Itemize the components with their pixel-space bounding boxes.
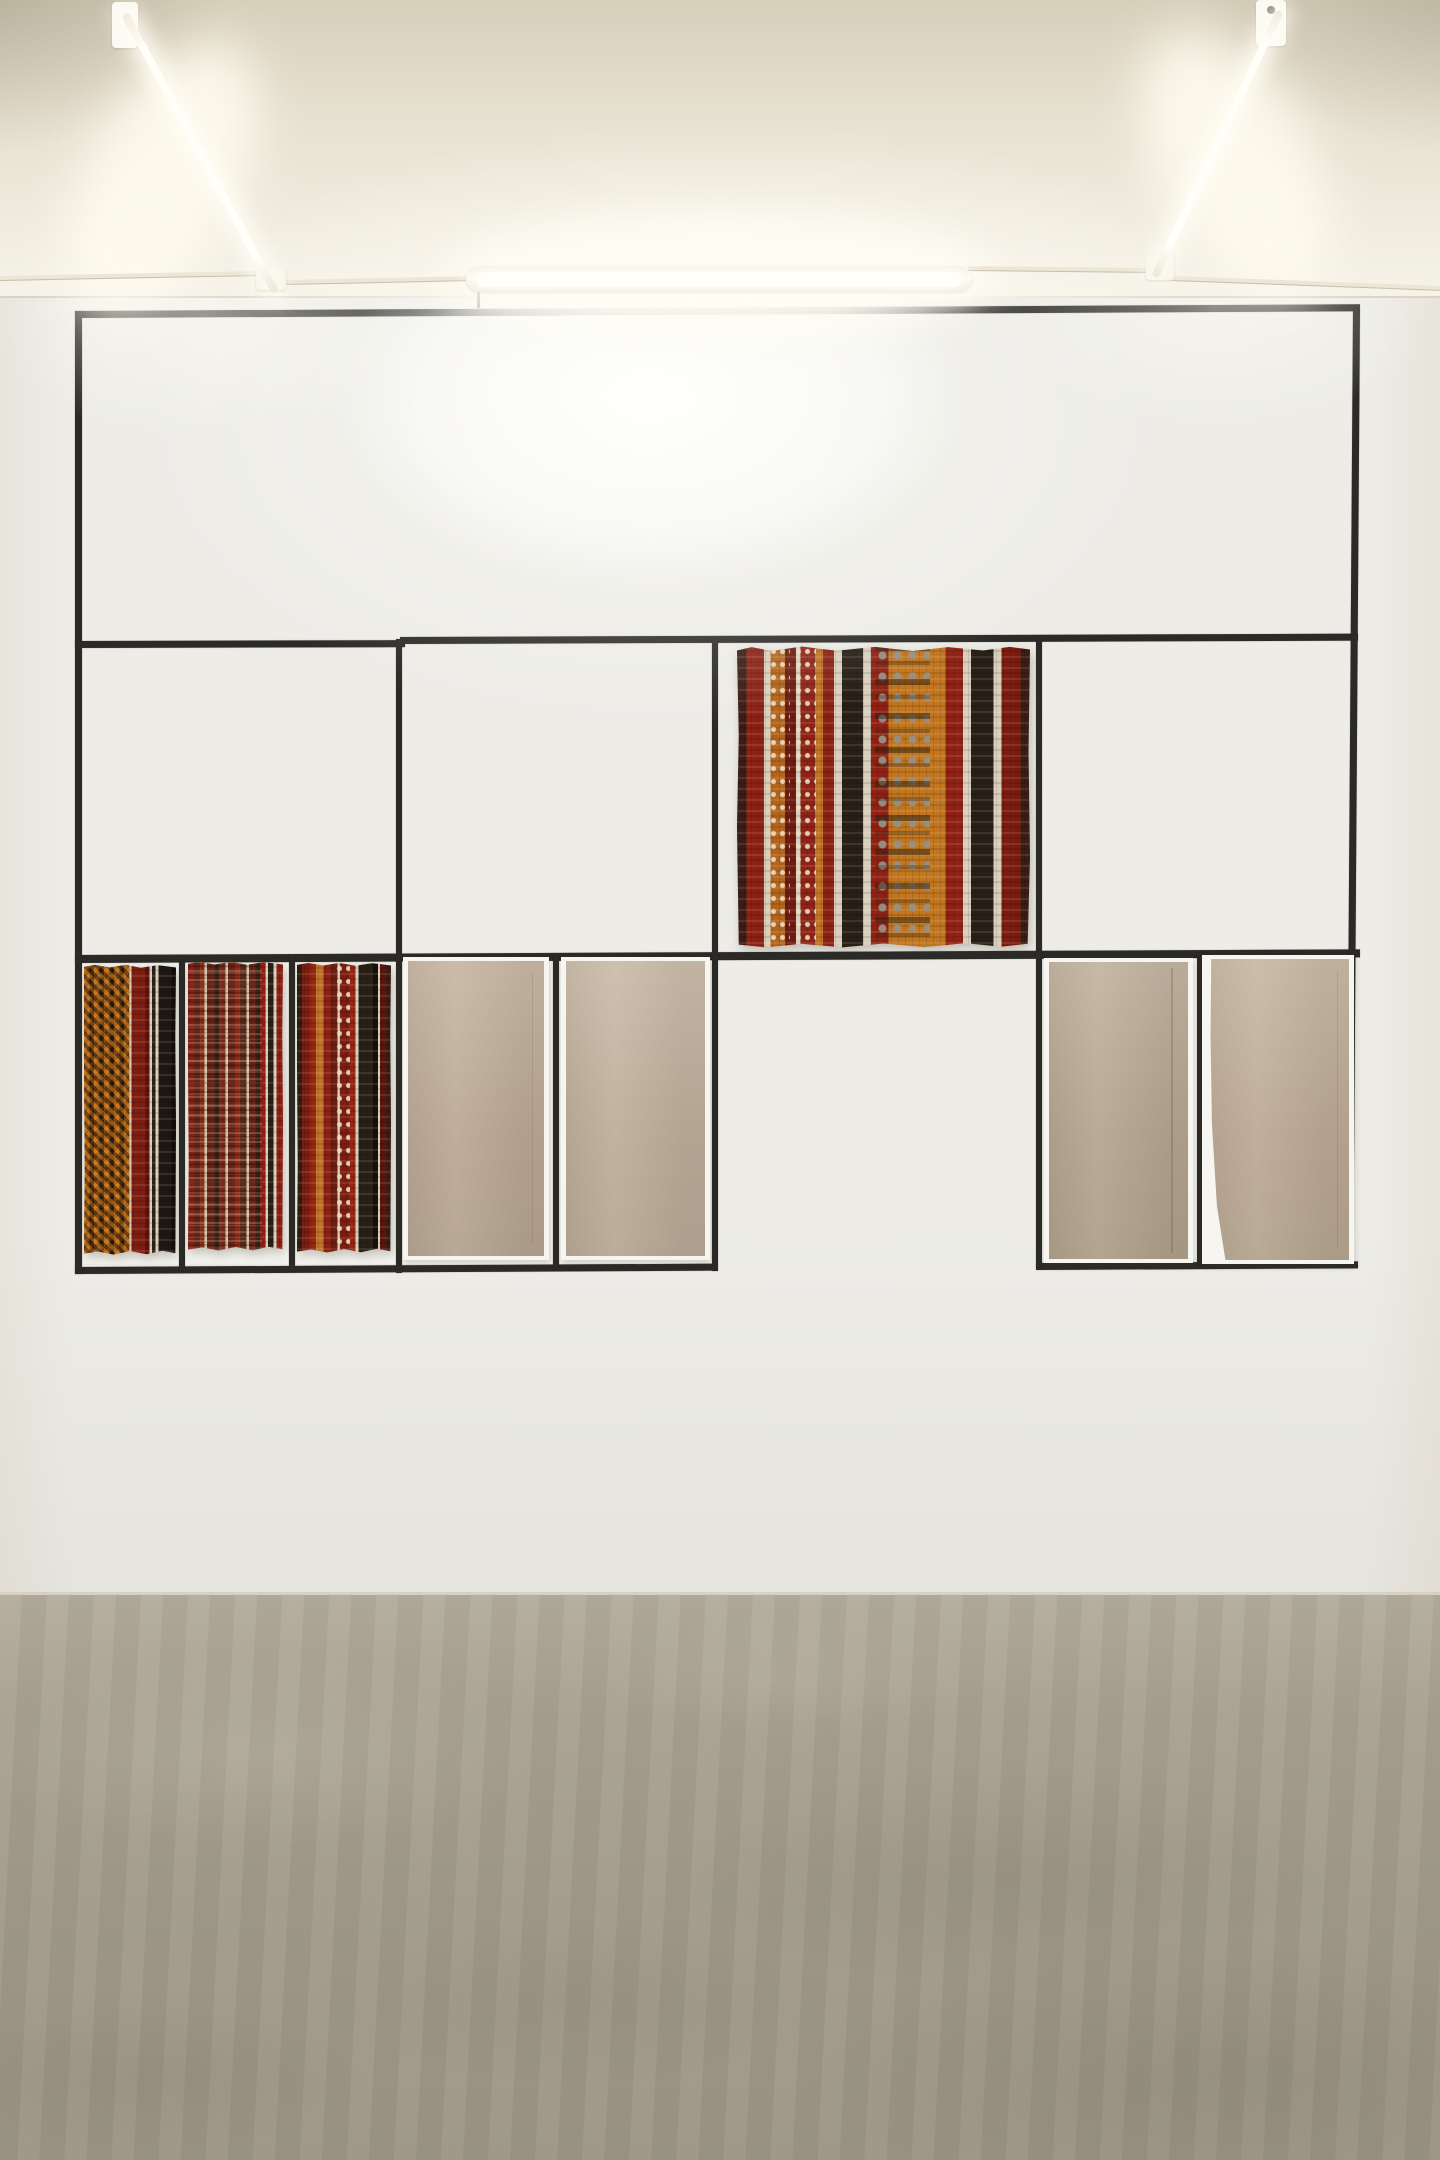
canvas-surface xyxy=(566,961,705,1256)
ikat-column xyxy=(875,645,931,948)
hanging-textile-weave xyxy=(737,645,1030,948)
tape-line-top xyxy=(75,304,1360,318)
artwork-canvas-3 xyxy=(1044,958,1193,1263)
canvas-surface xyxy=(1207,959,1349,1260)
artwork-hanging-textile xyxy=(737,645,1030,948)
concrete-floor xyxy=(0,1592,1440,2160)
tape-divider-1 xyxy=(396,639,402,1273)
tape-line-left-edge xyxy=(75,311,82,1274)
tape-line-second-left xyxy=(75,640,405,648)
tape-divider-3 xyxy=(1036,637,1042,1267)
dot-column xyxy=(769,645,790,948)
lattice-column xyxy=(84,964,129,1256)
artwork-woven-strip-1 xyxy=(84,964,176,1256)
artwork-woven-strip-3 xyxy=(297,962,391,1254)
artwork-canvas-4 xyxy=(1202,955,1354,1264)
tape-divider-bottom-2 xyxy=(289,955,295,1271)
tape-divider-bottom-1 xyxy=(179,955,185,1271)
wall xyxy=(0,298,1440,1592)
artwork-woven-strip-2 xyxy=(188,961,283,1252)
canvas-surface xyxy=(1049,962,1188,1259)
fine-pattern-column xyxy=(188,961,262,1252)
woven-strip-weave xyxy=(188,961,283,1252)
woven-strip-weave xyxy=(84,964,176,1256)
dot-column xyxy=(335,962,350,1254)
woven-strip-weave xyxy=(297,962,391,1254)
artwork-canvas-1 xyxy=(403,957,549,1260)
tape-divider-bottom-3 xyxy=(553,956,559,1270)
gallery-installation-photo xyxy=(0,0,1440,2160)
tape-line-second-right xyxy=(400,634,1358,644)
dot-column xyxy=(794,645,816,948)
canvas-surface xyxy=(408,961,544,1256)
wall-light-glow xyxy=(0,298,1440,1592)
tape-divider-2 xyxy=(712,639,718,1271)
artwork-canvas-2 xyxy=(561,957,710,1260)
ceiling xyxy=(0,0,1440,300)
